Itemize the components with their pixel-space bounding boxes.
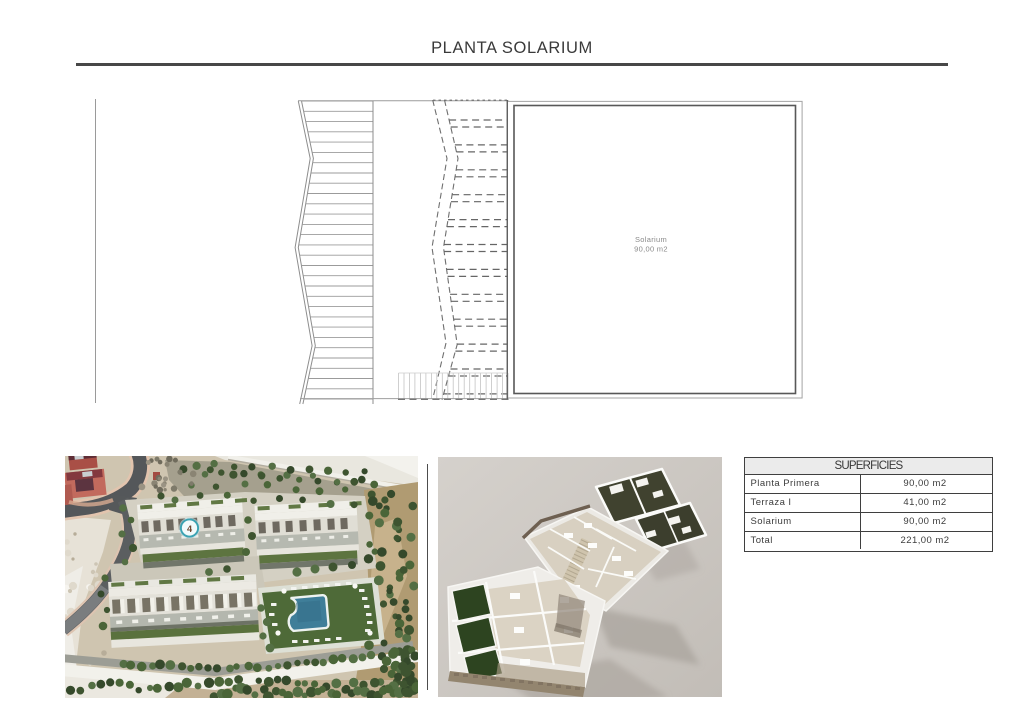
svg-text:Solarium: Solarium xyxy=(635,235,667,244)
svg-text:90,00 m2: 90,00 m2 xyxy=(634,245,668,254)
svg-text:4: 4 xyxy=(187,524,193,534)
